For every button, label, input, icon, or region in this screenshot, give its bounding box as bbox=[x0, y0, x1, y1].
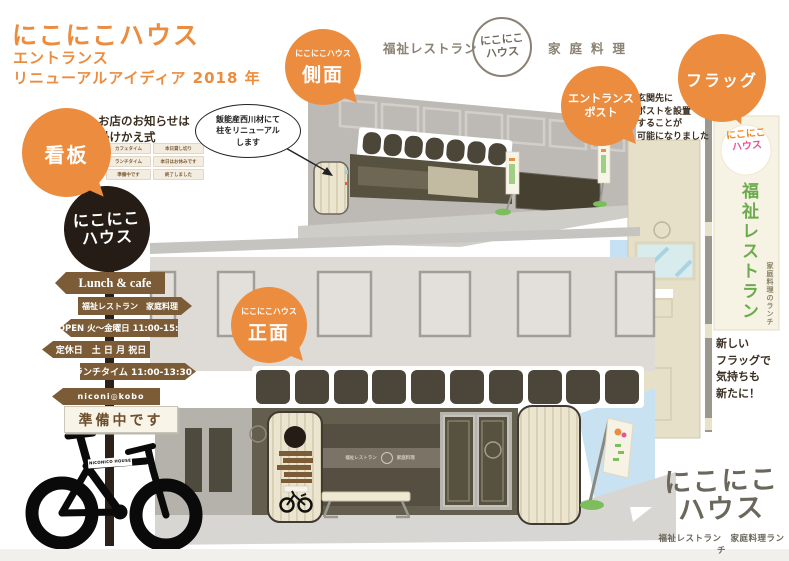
bubble-front-small: にこにこハウス bbox=[241, 306, 297, 317]
front-view-building bbox=[150, 227, 676, 545]
header-logo-circle: にこにこ ハウス bbox=[472, 17, 532, 77]
header-right-text: 家庭料理 bbox=[548, 38, 634, 57]
sign-tag: 準備中です bbox=[106, 169, 151, 180]
bottom-logo-line2: ハウス bbox=[658, 494, 786, 527]
corner-pillar bbox=[518, 406, 580, 524]
signpost-arrow-lunchtime: ランチタイム 11:00-13:30 bbox=[80, 363, 196, 380]
signpost-logo-line2: ハウス bbox=[82, 228, 134, 249]
flag-main-text: 福祉レストラン bbox=[736, 182, 761, 322]
bubble-entrance-line2: ポスト bbox=[585, 106, 618, 120]
mail-slot bbox=[654, 289, 673, 298]
bottom-logo: にこにこ ハウス 福祉レストラン 家庭料理ランチ bbox=[658, 468, 785, 556]
header-logo-line2: ハウス bbox=[485, 46, 519, 61]
storefront-sign-right: 家庭料理 bbox=[397, 455, 415, 461]
bubble-front-big: 正面 bbox=[248, 318, 290, 345]
bubble-flag: フラッグ bbox=[678, 34, 766, 122]
signpost-arrow-open-hours: OPEN 火〜金曜日 11:00-15:00 bbox=[60, 319, 178, 337]
signpost-arrow-kobo: niconi◎kobo bbox=[52, 388, 160, 405]
front-awning bbox=[252, 366, 644, 408]
header-left-text: 福祉レストラン bbox=[383, 38, 478, 57]
poster-canvas: にこにこハウス エントランス リニューアルアイディア 2018 年 福祉レストラ… bbox=[0, 0, 789, 561]
sign-tag: 終了しました bbox=[153, 169, 204, 180]
flag-sub-text: 家庭料理のランチ bbox=[765, 262, 775, 326]
storefront-sign-left: 福祉レストラン bbox=[345, 455, 377, 461]
pillar-callout: 飯能産西川材にて 柱をリニューアル します bbox=[195, 104, 301, 158]
bubble-flag-label: フラッグ bbox=[686, 67, 758, 91]
bubble-side-view: にこにこハウス 側面 bbox=[285, 29, 361, 105]
signpost-arrow-closed-days: 定休日 土 日 月 祝日 bbox=[42, 341, 150, 358]
page-subtitle-2: リニューアルアイディア 2018 年 bbox=[13, 68, 261, 89]
signpost-arrow-restaurant: 福祉レストラン 家庭料理 bbox=[78, 297, 192, 315]
bubble-front-view: にこにこハウス 正面 bbox=[231, 287, 307, 363]
bottom-logo-subtitle: 福祉レストラン 家庭料理ランチ bbox=[658, 532, 785, 556]
storefront-sign: 福祉レストラン 家庭料理 bbox=[310, 451, 450, 465]
bubble-side-small: にこにこハウス bbox=[295, 48, 351, 59]
entrance-doors bbox=[440, 412, 512, 510]
sign-tag: ランチタイム bbox=[106, 156, 151, 167]
sign-tag: カフェタイム bbox=[106, 143, 151, 154]
bubble-side-big: 側面 bbox=[302, 60, 344, 87]
flag-note: 新しい フラッグで 気持ちも 新たに！ bbox=[716, 336, 771, 402]
bubble-signboard-label: 看板 bbox=[45, 139, 89, 168]
signboard-tag-grid: カフェタイム 本日貸し切り ランチタイム 本日はお休みです 準備中です 終了しま… bbox=[106, 143, 204, 180]
signboard-note-heading: お店のお知らせは 掛けかえ式 bbox=[98, 114, 190, 145]
bubble-signboard: 看板 bbox=[22, 108, 111, 197]
bubble-entrance-post: エントランス ポスト bbox=[561, 66, 641, 146]
sign-tag: 本日はお休みです bbox=[153, 156, 204, 167]
signpost-arrow-lunch-cafe: Lunch & cafe bbox=[55, 272, 165, 294]
page-title: にこにこハウス bbox=[12, 16, 200, 52]
side-renewed-pillar bbox=[314, 162, 348, 214]
flag-pole bbox=[705, 112, 712, 432]
bubble-entrance-line1: エントランス bbox=[568, 92, 634, 106]
signpost-status-sign: 準備中です bbox=[64, 406, 178, 433]
page-subtitle-1: エントランス bbox=[13, 48, 109, 69]
storefront-logo-circle bbox=[381, 452, 393, 464]
sign-tag: 本日貸し切り bbox=[153, 143, 204, 154]
